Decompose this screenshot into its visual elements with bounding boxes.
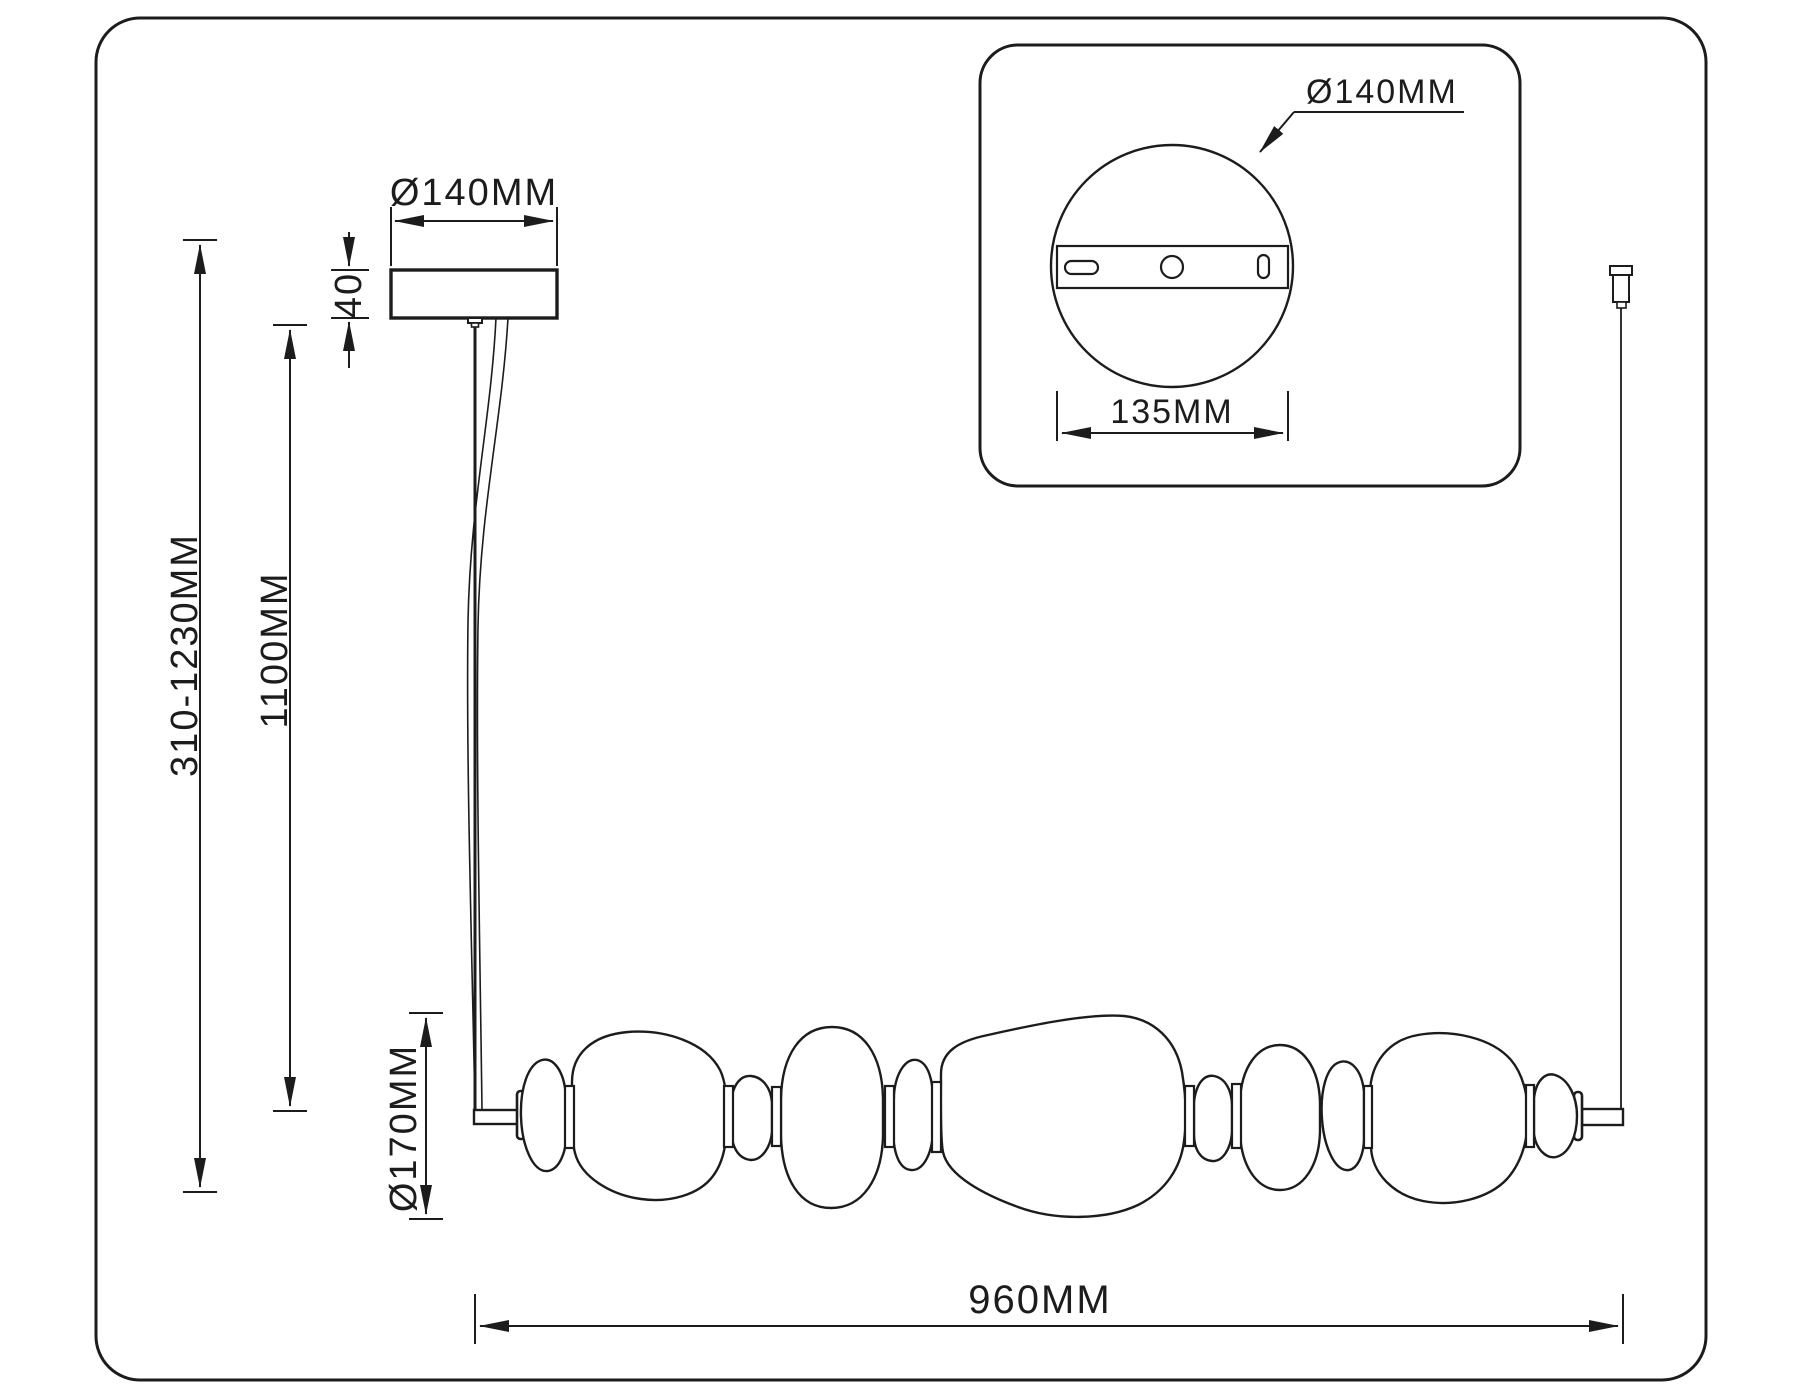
shade-pebble-1 [521,1060,566,1172]
canopy-height-label: 40 [328,272,370,318]
dim-canopy-diameter [391,207,557,266]
ceiling-canopy [391,270,557,327]
shade-diameter-label: Ø170MM [383,1044,425,1212]
shade-pebble-4 [1194,1076,1232,1161]
shade-pebble-2 [731,1076,772,1160]
canopy-diameter-label: Ø140MM [390,172,558,214]
inset-canopy-bottom-view [980,45,1520,486]
shade-cone-2-large [941,1016,1186,1217]
suspension-rod-and-wire [468,318,508,1110]
shade-oval-1 [781,1027,883,1208]
leader-canopy-diameter [1260,112,1464,152]
power-wire [468,318,496,1110]
cable-gripper-cap [1610,266,1632,275]
bar-right-end [1582,1109,1623,1125]
shade-pebble-6 [1534,1074,1577,1157]
cable-gripper-assembly [1610,266,1632,1109]
pendant-lamp-dimension-drawing: 135MM Ø140MM Ø140MM 40 310-1230MM 1100MM [0,0,1800,1400]
inset-canopy-diameter-label: Ø140MM [1306,73,1458,111]
shade-pebble-3 [893,1060,933,1170]
shade-oval-2 [1240,1045,1320,1190]
total-height-range-label: 310-1230MM [164,533,206,777]
canopy-plate-circle [1051,145,1293,387]
shade-cone-1 [572,1032,727,1200]
glass-shades [521,1016,1577,1217]
rod-drop-label: 1100MM [254,571,296,728]
shade-pebble-5 [1322,1062,1364,1171]
technical-drawing-page: 135MM Ø140MM Ø140MM 40 310-1230MM 1100MM [0,0,1800,1400]
shade-round-large [1370,1033,1528,1203]
bracket-center-hole [1161,256,1183,278]
bar-left-end [474,1110,518,1124]
bracket-slot-right [1258,255,1269,278]
fixture-width-label: 960MM [968,1278,1111,1322]
mounting-bracket [1057,246,1288,288]
inset-plate-width-label: 135MM [1110,393,1233,431]
connector-ring [565,1086,574,1148]
bracket-slot-left [1065,261,1098,274]
cable-gripper-body [1613,275,1629,302]
